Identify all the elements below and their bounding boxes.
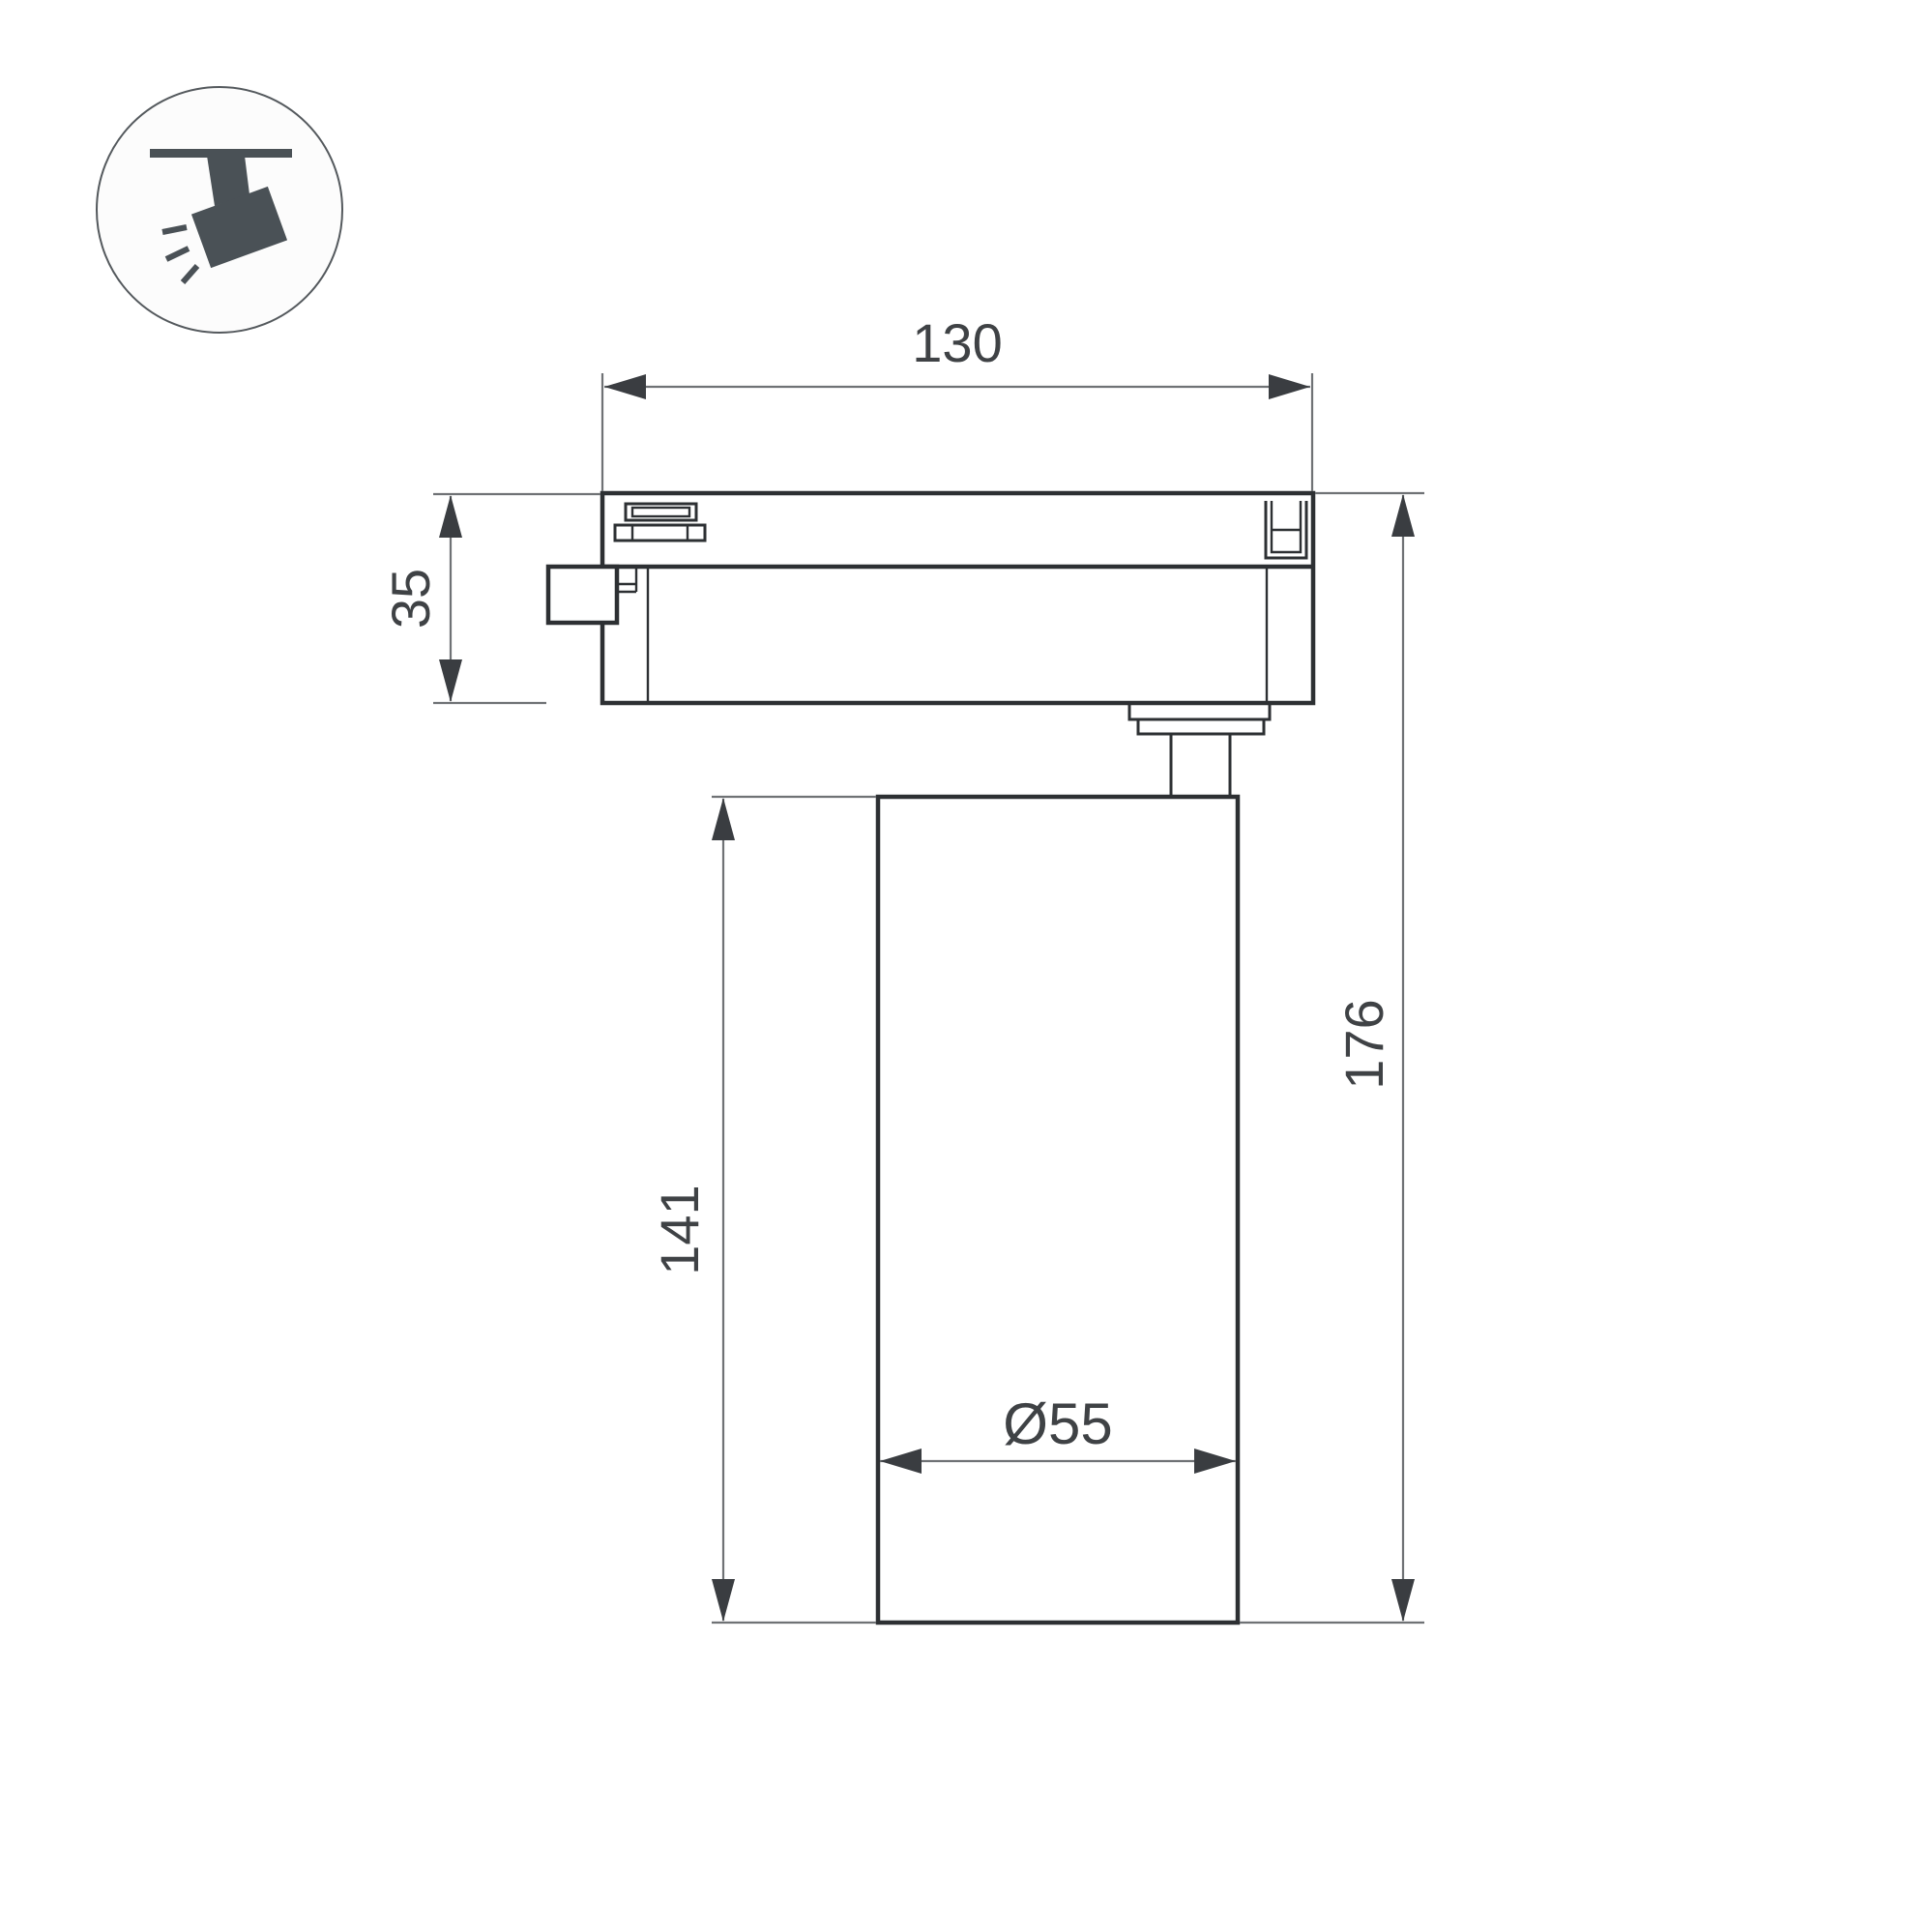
arrowhead-right: [1269, 374, 1310, 399]
dim-55-label: Ø55: [1003, 1391, 1112, 1456]
lamp-body-drawing: [878, 797, 1238, 1623]
dimension-drawing-svg: 130 35 141 176: [0, 0, 1932, 1932]
arrowhead-left: [604, 374, 646, 399]
swivel-step-2: [1138, 719, 1264, 734]
dim-body-141: 141: [649, 797, 876, 1623]
adapter-housing-outline: [602, 493, 1313, 703]
arrowhead-top: [1391, 494, 1415, 537]
arrowhead-bottom: [1391, 1579, 1415, 1622]
dim-width-130: 130: [602, 312, 1312, 491]
dim-130-label: 130: [912, 312, 1002, 373]
latch-knob: [548, 567, 617, 623]
track-spotlight-icon: [97, 87, 342, 333]
arrowhead-bottom: [712, 1579, 735, 1622]
arrowhead-top: [712, 798, 735, 840]
technical-drawing-canvas: 130 35 141 176: [0, 0, 1932, 1932]
swivel-stem: [1171, 734, 1230, 797]
arrowhead-top: [439, 495, 462, 538]
track-adapter-drawing: [548, 493, 1313, 797]
dim-176-label: 176: [1333, 999, 1394, 1089]
swivel-step-1: [1129, 703, 1270, 719]
dim-35-label: 35: [380, 569, 441, 629]
dim-141-label: 141: [649, 1185, 710, 1274]
arrowhead-bottom: [439, 659, 462, 702]
lamp-body-outline: [878, 797, 1238, 1623]
